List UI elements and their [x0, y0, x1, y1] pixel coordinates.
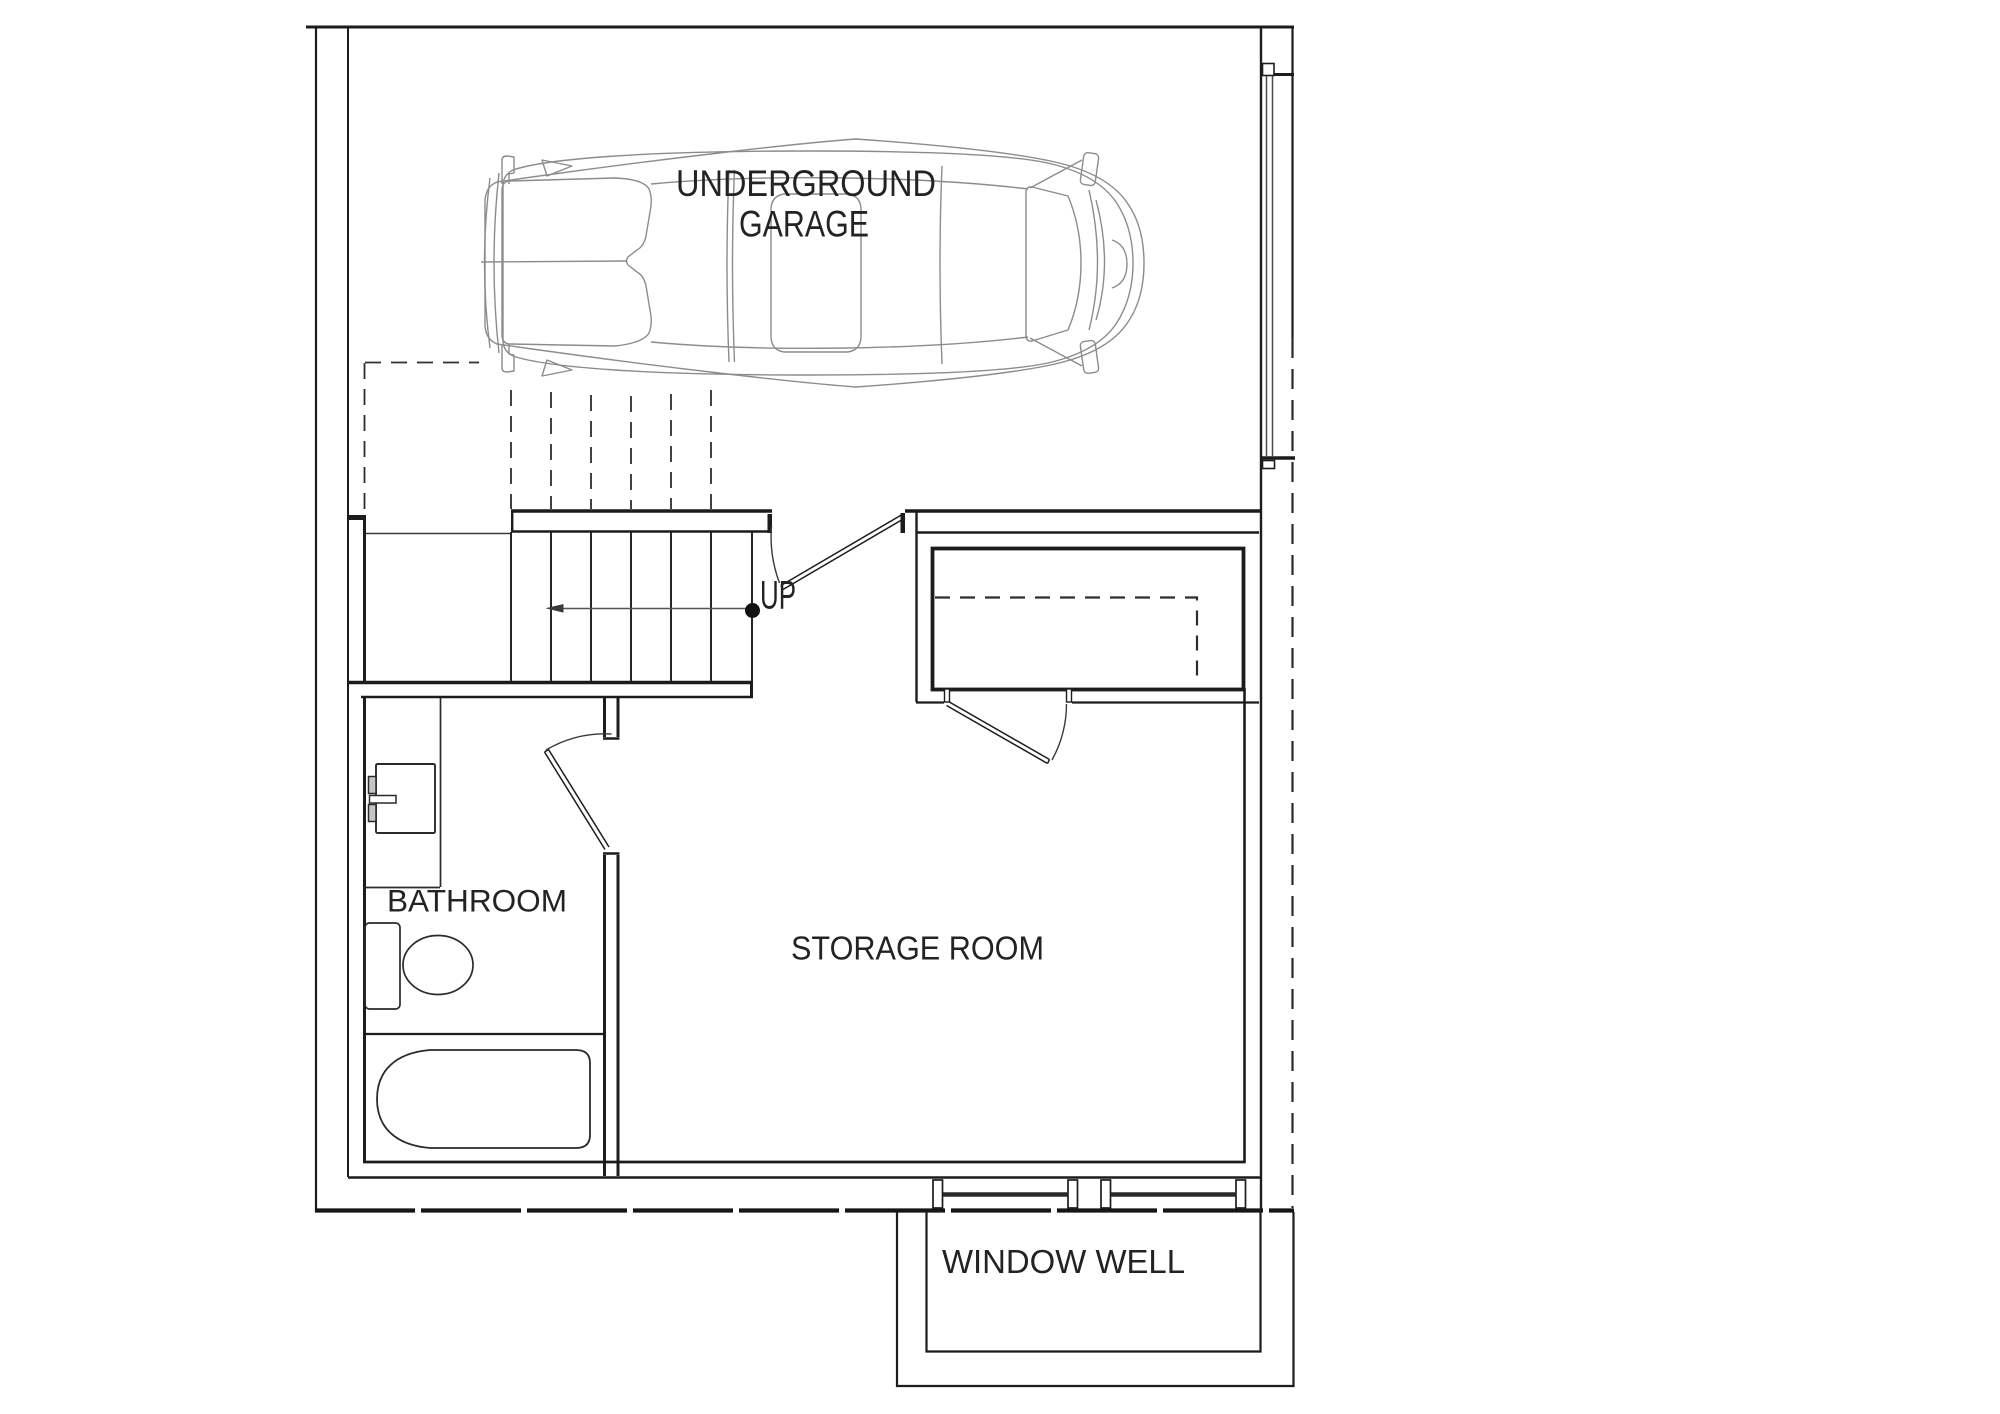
svg-text:GARAGE: GARAGE	[739, 204, 869, 245]
svg-text:UP: UP	[760, 574, 796, 618]
svg-text:WINDOW WELL: WINDOW WELL	[942, 1243, 1185, 1280]
svg-text:UNDERGROUND: UNDERGROUND	[676, 163, 936, 204]
svg-text:BATHROOM: BATHROOM	[387, 883, 567, 919]
svg-text:STORAGE ROOM: STORAGE ROOM	[791, 931, 1044, 968]
